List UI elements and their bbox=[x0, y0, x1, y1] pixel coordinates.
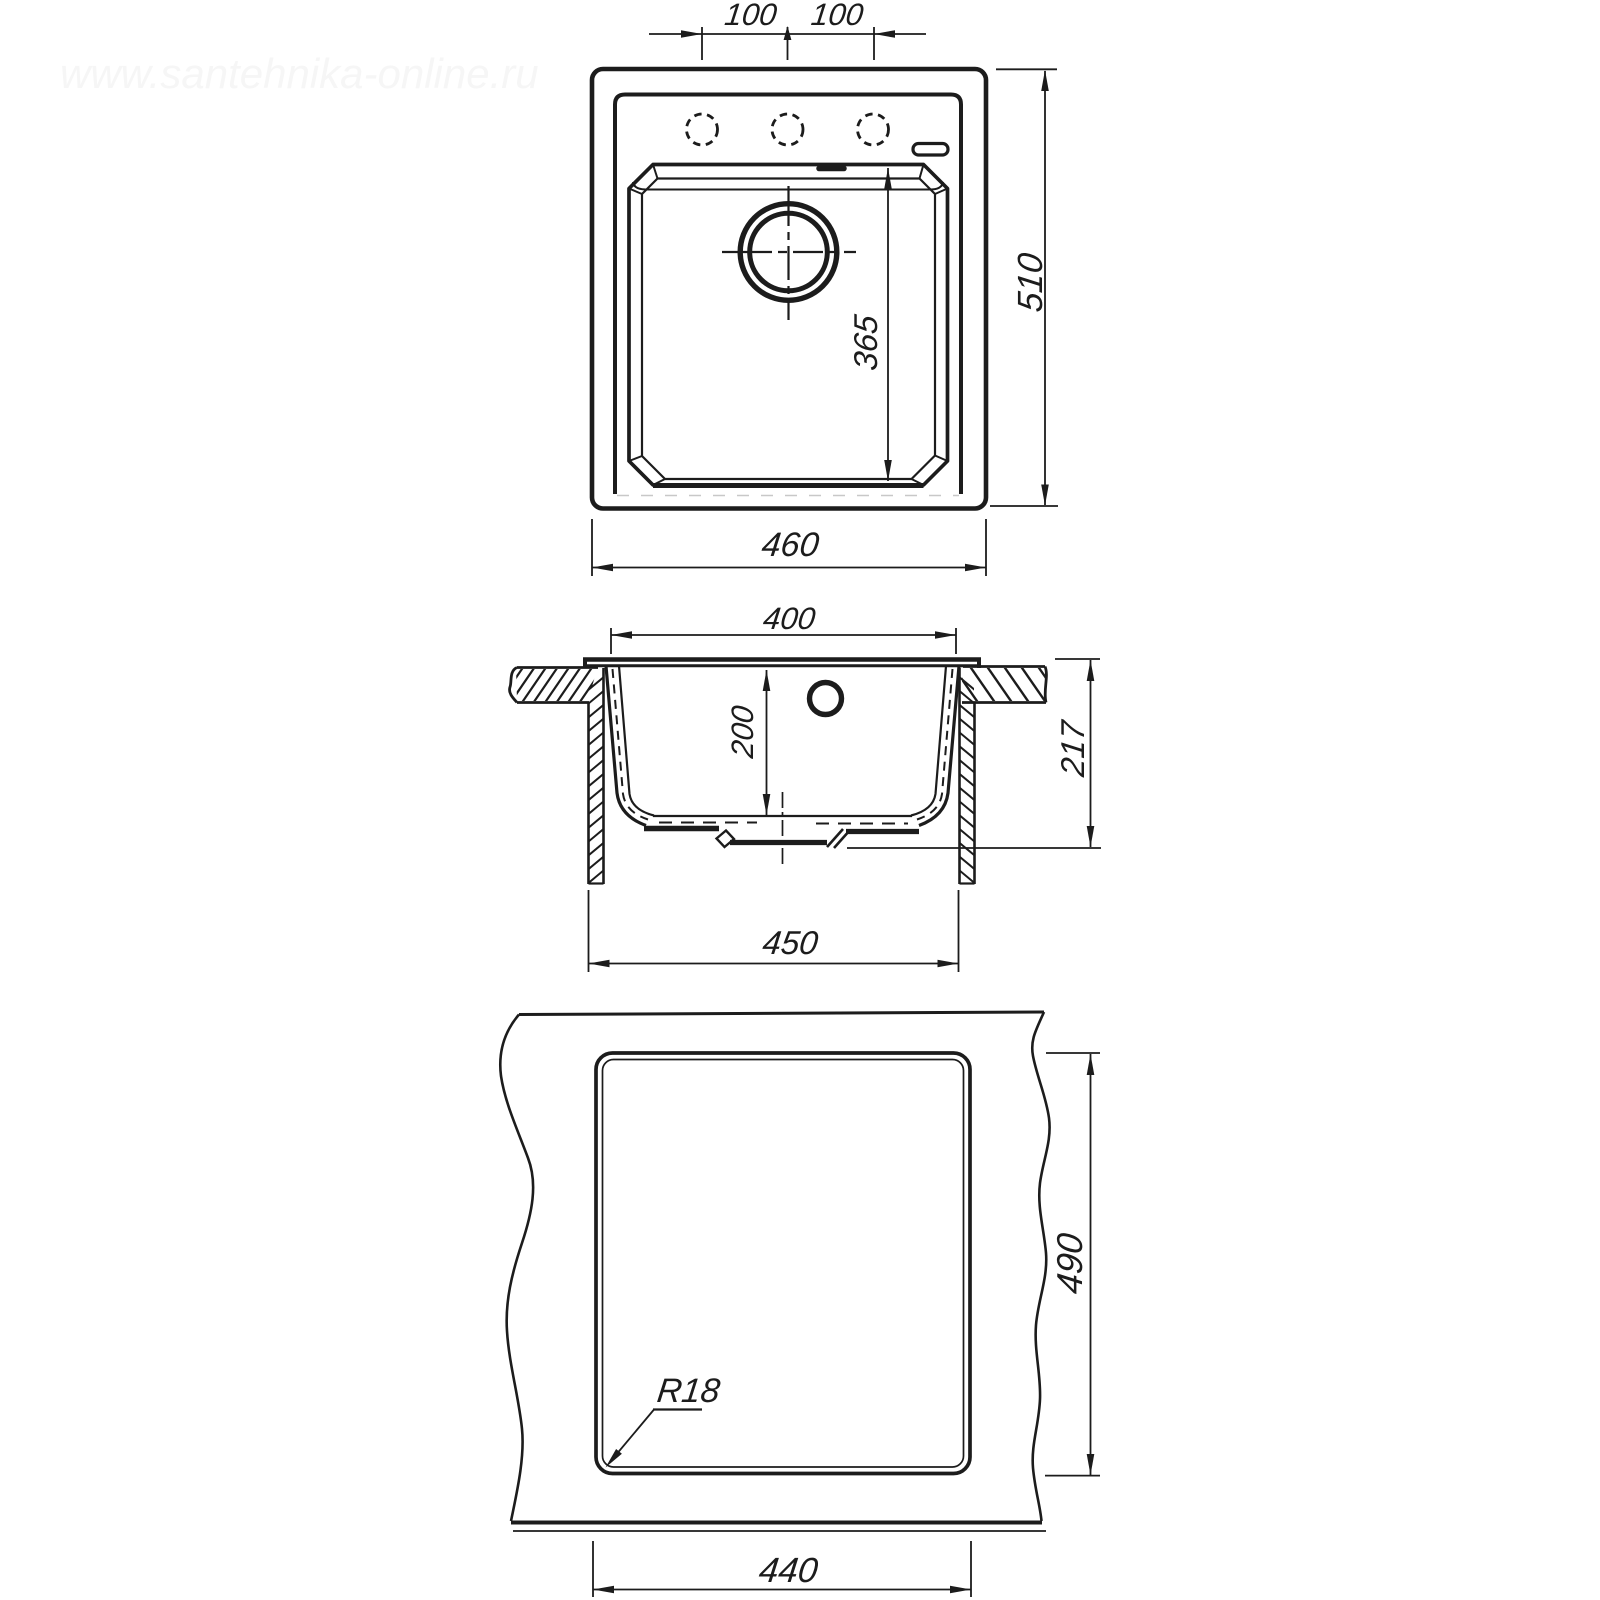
svg-text:400: 400 bbox=[761, 601, 818, 636]
svg-text:R18: R18 bbox=[655, 1372, 722, 1410]
svg-text:100: 100 bbox=[723, 0, 780, 32]
svg-text:217: 217 bbox=[1055, 717, 1092, 779]
svg-text:450: 450 bbox=[760, 925, 820, 962]
svg-text:www.santehnika-online.ru: www.santehnika-online.ru bbox=[60, 50, 539, 97]
svg-text:510: 510 bbox=[1011, 251, 1050, 315]
svg-text:200: 200 bbox=[725, 703, 760, 761]
svg-text:440: 440 bbox=[757, 1551, 821, 1590]
svg-text:460: 460 bbox=[760, 526, 821, 564]
svg-text:490: 490 bbox=[1049, 1231, 1090, 1296]
svg-text:365: 365 bbox=[848, 312, 885, 372]
svg-text:100: 100 bbox=[809, 0, 866, 32]
